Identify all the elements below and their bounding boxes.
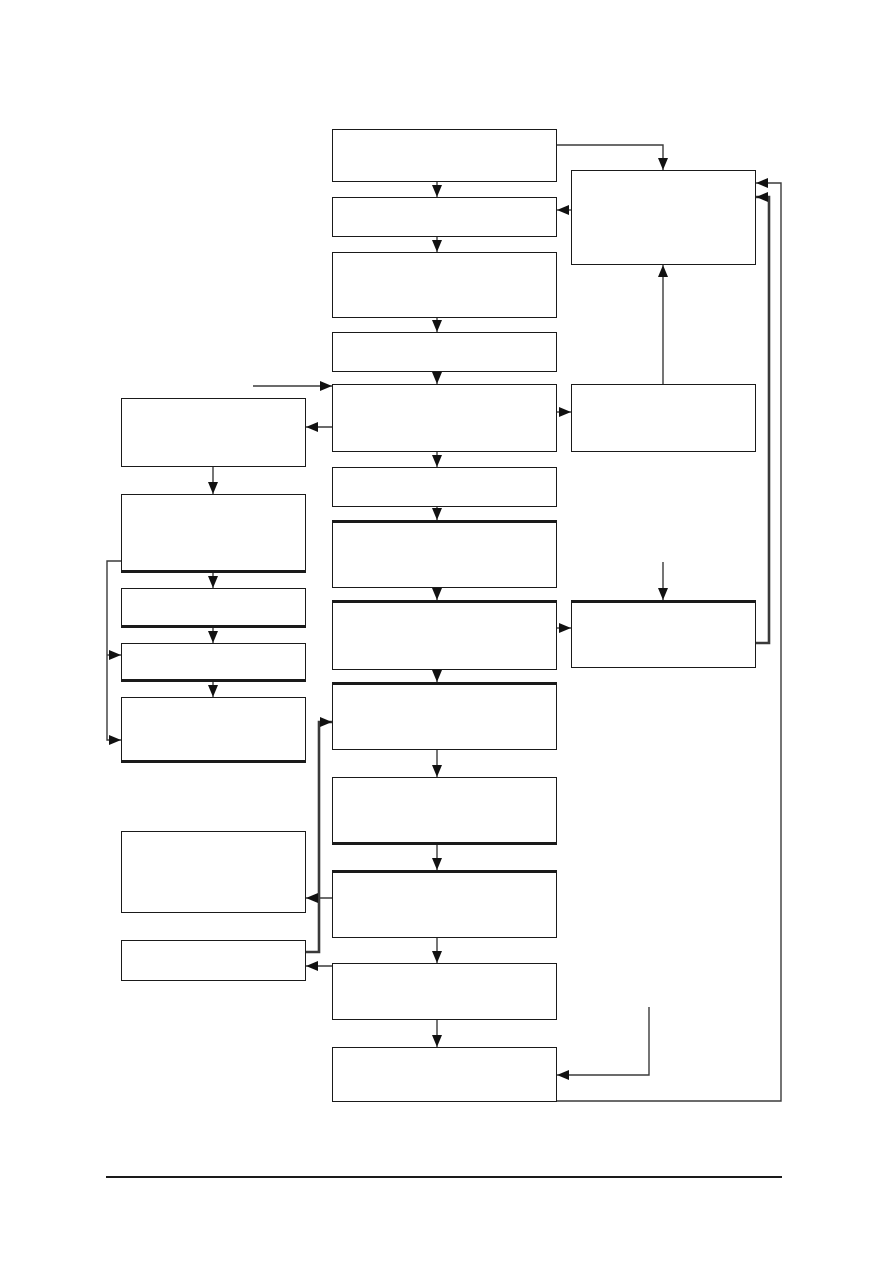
flow-box-right-3 xyxy=(571,600,756,668)
flow-edge-c1-r1 xyxy=(557,145,663,170)
flow-box-center-6 xyxy=(332,467,557,507)
flow-edge-l7-c9-loop xyxy=(306,722,332,952)
flow-box-center-2 xyxy=(332,197,557,237)
flow-box-center-12 xyxy=(332,963,557,1020)
flow-box-center-3 xyxy=(332,252,557,318)
flow-edge-entry-c13 xyxy=(557,1007,649,1075)
flow-box-left-5 xyxy=(121,697,306,763)
flow-box-left-2 xyxy=(121,494,306,573)
flow-box-center-7 xyxy=(332,520,557,588)
flow-edge-r3-r1-loop xyxy=(756,197,769,643)
flow-box-center-10 xyxy=(332,777,557,845)
flow-box-right-1 xyxy=(571,170,756,265)
flowchart-page xyxy=(0,0,893,1263)
flow-box-center-8 xyxy=(332,600,557,670)
flow-box-left-7 xyxy=(121,940,306,981)
flow-box-center-13 xyxy=(332,1047,557,1102)
flow-box-center-9 xyxy=(332,682,557,750)
flow-box-left-3 xyxy=(121,588,306,628)
flow-box-left-1 xyxy=(121,398,306,467)
flow-box-center-4 xyxy=(332,332,557,372)
flow-box-center-11 xyxy=(332,870,557,938)
flow-box-left-6 xyxy=(121,831,306,913)
flow-box-center-1 xyxy=(332,129,557,182)
flow-box-left-4 xyxy=(121,643,306,682)
flow-box-center-5 xyxy=(332,384,557,452)
flow-box-right-2 xyxy=(571,384,756,452)
footer-divider xyxy=(106,1176,782,1178)
flow-edge-l2-l5-branch xyxy=(107,561,121,740)
